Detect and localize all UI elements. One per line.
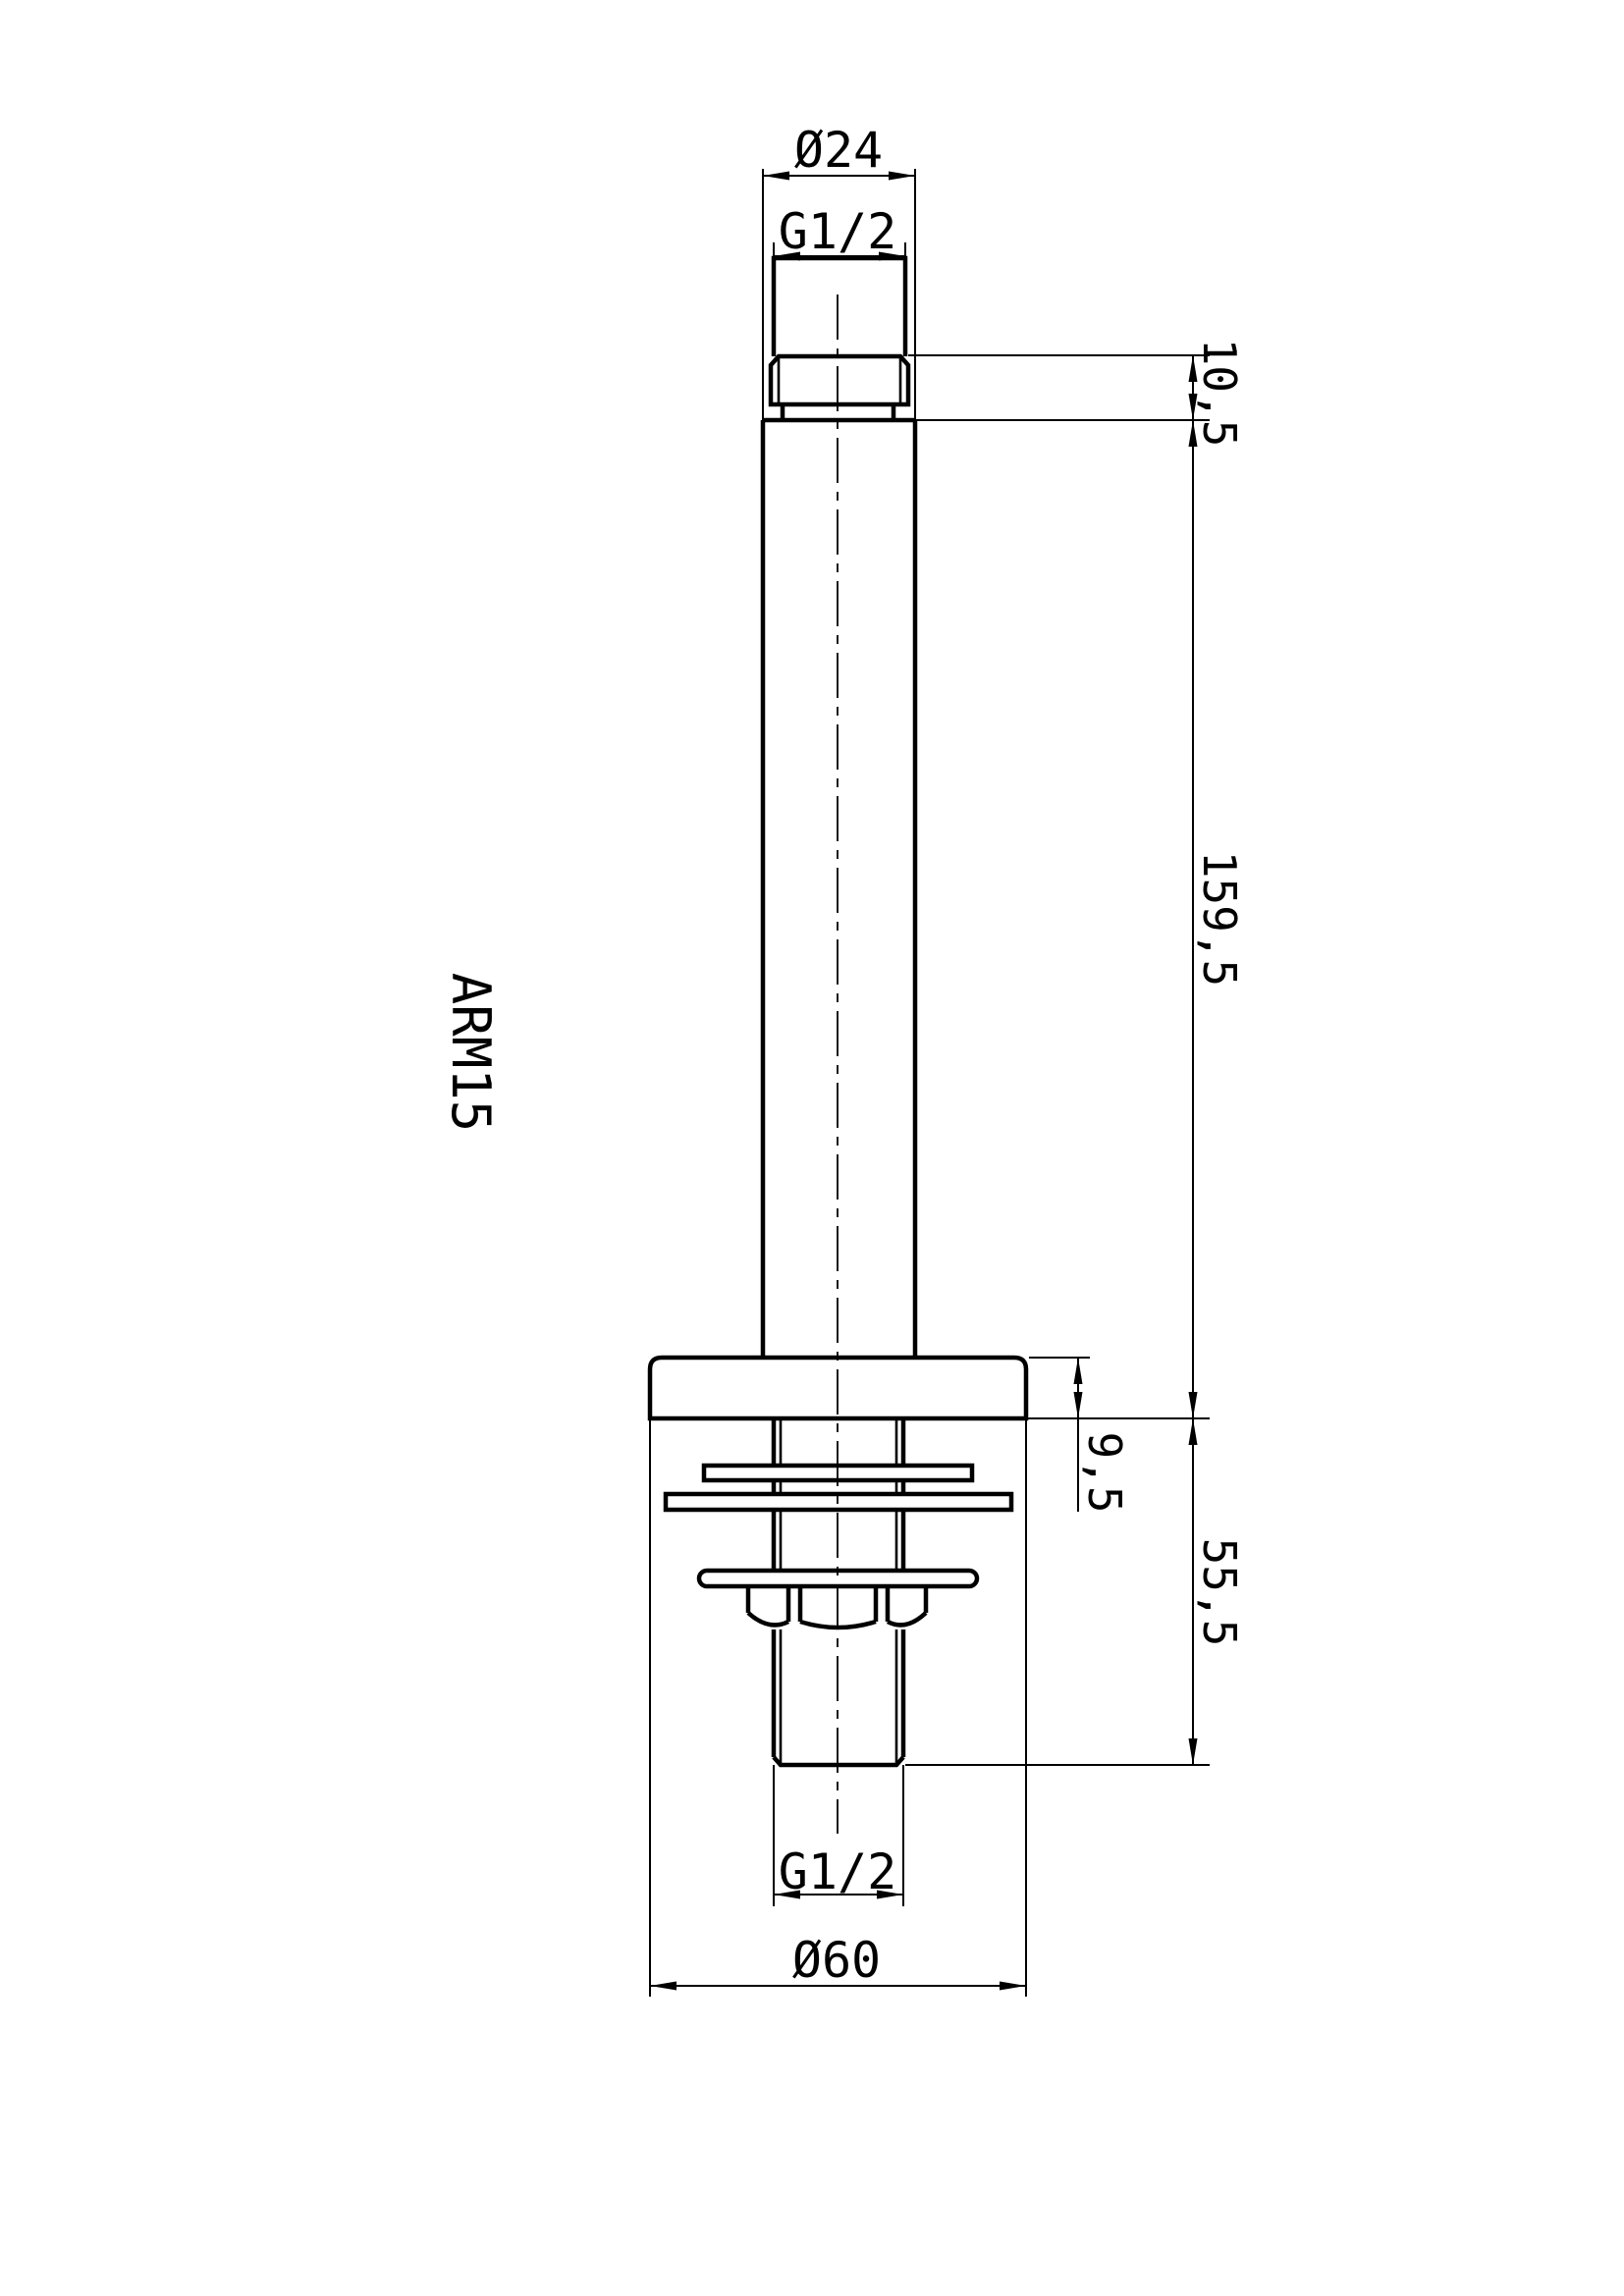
drawing-page: Ø24 G1/2 10,5 159,5 <box>0 0 1624 2296</box>
neck-height-value: 10,5 <box>1193 339 1246 448</box>
collar-thread-lines <box>779 356 900 404</box>
arrowhead <box>1189 1392 1198 1418</box>
bottom-thread-dimension: G1/2 <box>774 1765 903 1906</box>
flange-diameter-value: Ø60 <box>792 1932 881 1989</box>
arrowhead <box>1074 1392 1083 1418</box>
flange-thickness-value: 9,5 <box>1078 1431 1131 1513</box>
top-thread-dimension: G1/2 <box>774 203 905 261</box>
arrowhead <box>889 172 915 181</box>
top-diameter-dimension: Ø24 <box>763 122 915 420</box>
flange-diameter-dimension: Ø60 <box>650 1418 1026 1997</box>
top-thread-stub <box>774 258 905 356</box>
arm-length-value: 159,5 <box>1193 851 1246 987</box>
arrowhead <box>1074 1358 1083 1384</box>
arrowhead <box>1000 1982 1026 1991</box>
pipe-body <box>763 420 915 1358</box>
tail-length-value: 55,5 <box>1193 1538 1246 1647</box>
arrowhead <box>763 172 789 181</box>
extension-lines <box>908 355 1210 420</box>
technical-drawing-canvas: Ø24 G1/2 10,5 159,5 <box>0 0 1624 2296</box>
extension-lines <box>905 1418 1210 1765</box>
top-diameter-value: Ø24 <box>794 122 883 179</box>
flange-thickness-dimension: 9,5 <box>1029 1358 1131 1514</box>
arrowhead <box>1189 1418 1198 1445</box>
top-thread-value: G1/2 <box>779 203 896 260</box>
washer-lower <box>666 1494 1011 1510</box>
pipe-end <box>774 1757 903 1765</box>
tail-length-dimension: 55,5 <box>905 1418 1246 1765</box>
collar-outline <box>771 356 908 404</box>
part-code-label: ARM15 <box>440 973 502 1133</box>
arrowhead <box>1189 1738 1198 1765</box>
extension-lines <box>650 1418 1026 1997</box>
neck-height-dimension: 10,5 <box>908 339 1246 448</box>
arrowhead <box>650 1982 677 1991</box>
arm-length-dimension: 159,5 <box>1189 420 1247 1418</box>
bottom-thread-value: G1/2 <box>779 1843 896 1900</box>
tail-thread-inner <box>781 1418 896 1765</box>
